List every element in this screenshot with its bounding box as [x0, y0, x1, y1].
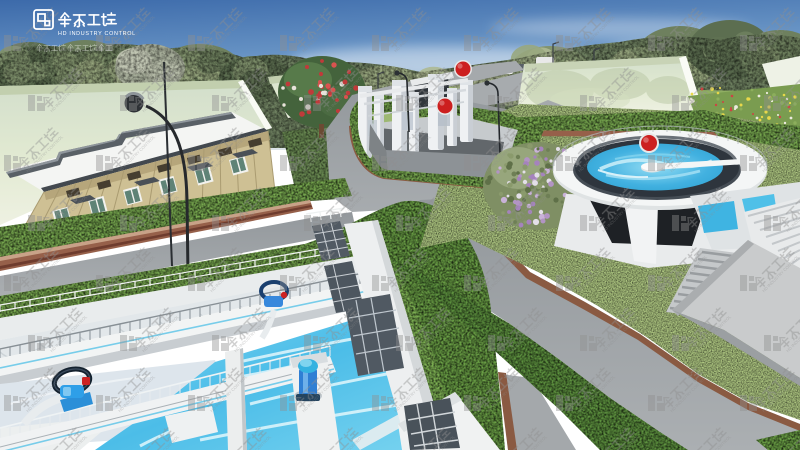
svg-text:HD INDUSTRY CONTROL: HD INDUSTRY CONTROL — [58, 31, 136, 37]
